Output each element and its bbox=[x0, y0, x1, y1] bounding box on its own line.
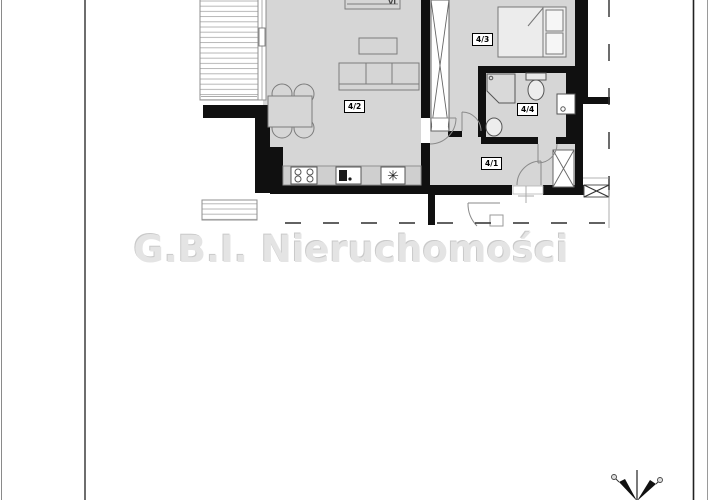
dining-set bbox=[268, 84, 314, 138]
kitchen: ✳ bbox=[283, 166, 421, 185]
svg-text:✳: ✳ bbox=[387, 169, 399, 185]
double-bed bbox=[498, 7, 566, 57]
washing-machine-icon bbox=[557, 94, 575, 114]
balcony-door-handle bbox=[259, 28, 265, 46]
north-arrow-icon bbox=[612, 470, 663, 500]
pillow bbox=[546, 10, 563, 31]
washbasin-icon bbox=[486, 118, 502, 136]
dining-table bbox=[268, 96, 312, 127]
pillow bbox=[546, 33, 563, 54]
fridge-icon: ✳ bbox=[381, 167, 405, 185]
hall-wardrobe bbox=[553, 150, 574, 187]
shaft-hatch bbox=[584, 185, 609, 197]
room-label-4-4: 4/4 bbox=[517, 103, 538, 116]
room-label-4-1: 4/1 bbox=[481, 157, 502, 170]
stove-icon bbox=[291, 167, 317, 184]
landing-mark bbox=[490, 215, 503, 226]
balcony bbox=[200, 0, 266, 100]
toilet-icon bbox=[526, 73, 546, 100]
watermark: G.B.I. Nieruchomości bbox=[0, 228, 702, 271]
sink-icon bbox=[336, 167, 361, 184]
floor-plan-page: ✳ bbox=[0, 0, 710, 500]
tv-cabinet-text: VI bbox=[388, 0, 396, 6]
room-label-4-3: 4/3 bbox=[472, 33, 493, 46]
room-label-4-2: 4/2 bbox=[344, 100, 365, 113]
lower-balcony bbox=[202, 200, 257, 220]
wardrobe bbox=[431, 0, 449, 131]
entrance-threshold bbox=[513, 186, 543, 194]
